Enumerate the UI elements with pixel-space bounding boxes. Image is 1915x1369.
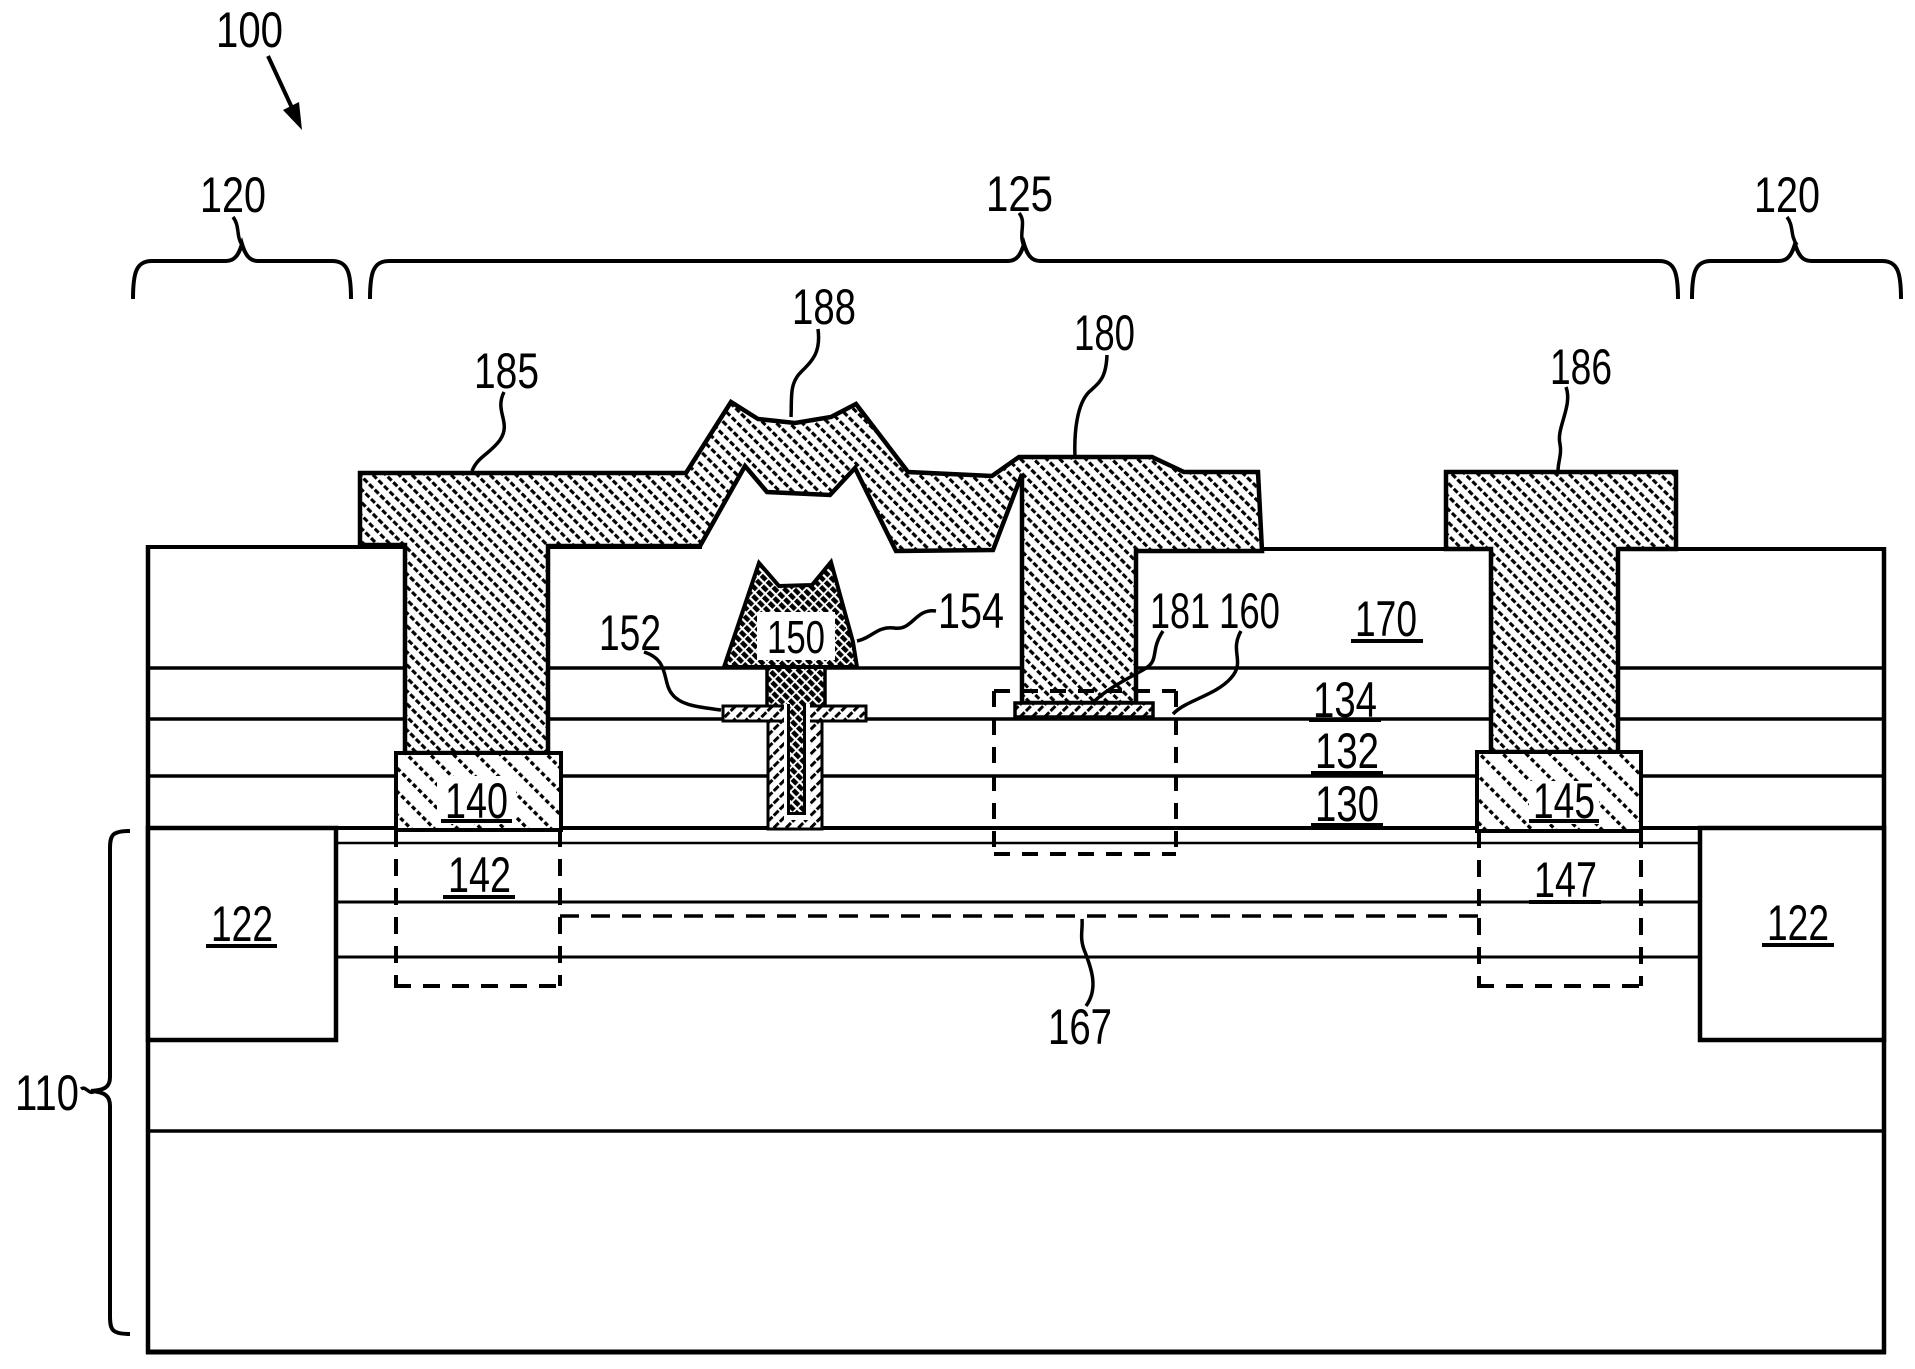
svg-text:186: 186 [1550, 339, 1612, 395]
svg-text:160: 160 [1219, 583, 1280, 639]
svg-text:167: 167 [1048, 999, 1112, 1055]
svg-text:152: 152 [599, 605, 661, 661]
svg-text:188: 188 [792, 279, 856, 335]
svg-text:110: 110 [15, 1065, 79, 1121]
svg-text:100: 100 [216, 2, 283, 58]
svg-text:180: 180 [1074, 305, 1135, 361]
svg-text:120: 120 [1754, 167, 1820, 223]
svg-text:122: 122 [1767, 895, 1829, 951]
svg-text:147: 147 [1534, 852, 1597, 908]
svg-text:185: 185 [474, 343, 539, 399]
svg-text:122: 122 [211, 896, 273, 952]
svg-text:170: 170 [1355, 591, 1417, 647]
svg-text:154: 154 [938, 583, 1004, 639]
svg-text:120: 120 [200, 167, 266, 223]
svg-text:181: 181 [1150, 583, 1210, 639]
svg-text:132: 132 [1315, 723, 1379, 779]
svg-text:142: 142 [448, 847, 511, 903]
svg-text:150: 150 [767, 611, 825, 663]
